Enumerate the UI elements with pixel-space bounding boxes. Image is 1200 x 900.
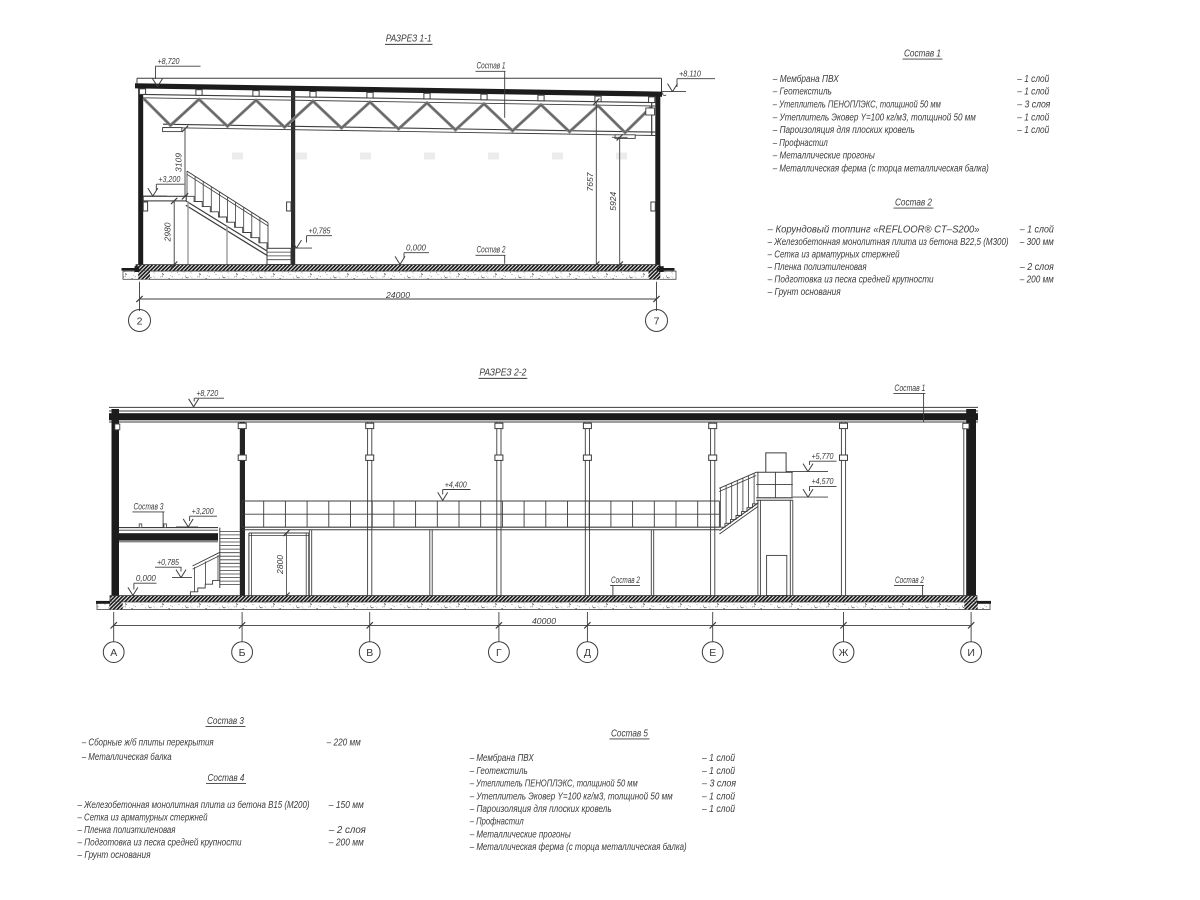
svg-text:0,000: 0,000	[136, 574, 157, 583]
svg-text:40000: 40000	[532, 616, 556, 626]
svg-text:Состав 5: Состав 5	[611, 727, 648, 739]
svg-text:– 1 слой: – 1 слой	[1016, 74, 1049, 85]
svg-text:– Пароизоляция для плоских кро: – Пароизоляция для плоских кровель	[772, 125, 915, 136]
svg-text:– 1 слой: – 1 слой	[701, 753, 735, 764]
svg-text:+8,720: +8,720	[158, 57, 180, 66]
svg-text:Состав 1: Состав 1	[477, 61, 506, 71]
svg-text:Состав 1: Состав 1	[904, 48, 941, 60]
svg-text:– 3 слоя: – 3 слоя	[1016, 100, 1050, 111]
svg-text:2: 2	[137, 315, 143, 327]
svg-text:– 200 мм: – 200 мм	[328, 838, 364, 849]
svg-text:– 200 мм: – 200 мм	[1019, 275, 1054, 286]
svg-text:– Грунт основания: – Грунт основания	[77, 850, 151, 861]
svg-text:5924: 5924	[608, 191, 618, 210]
svg-text:+0,785: +0,785	[309, 227, 331, 236]
svg-text:– 1 слой: – 1 слой	[701, 766, 735, 777]
svg-text:– Утеплитель ПЕНОПЛЭКС, толщин: – Утеплитель ПЕНОПЛЭКС, толщиной 50 мм	[469, 779, 638, 790]
svg-text:– Железобетонная монолитная п: – Железобетонная монолитная плита из бет…	[767, 236, 1009, 248]
svg-text:+4,400: +4,400	[445, 480, 467, 489]
svg-text:А: А	[110, 647, 117, 659]
svg-text:– 2 слоя: – 2 слоя	[1019, 262, 1054, 273]
svg-text:7657: 7657	[585, 172, 595, 191]
svg-text:– 1 слой: – 1 слой	[1016, 112, 1049, 123]
svg-text:– Пленка полиэтиленовая: – Пленка полиэтиленовая	[767, 262, 867, 273]
svg-text:– 1 слой: – 1 слой	[701, 804, 735, 815]
svg-text:– Корундовый топпинг «REFLOOR®: – Корундовый топпинг «REFLOOR® CT–S200»	[767, 225, 980, 236]
svg-text:7: 7	[654, 315, 660, 327]
svg-text:3109: 3109	[174, 153, 184, 172]
svg-text:– Пароизоляция для плоских кро: – Пароизоляция для плоских кровель	[469, 804, 612, 815]
svg-text:+0,785: +0,785	[157, 558, 179, 567]
svg-text:+3,200: +3,200	[192, 507, 214, 516]
svg-text:– Сетка из арматурных стержней: – Сетка из арматурных стержней	[77, 813, 208, 824]
svg-text:Состав 3: Состав 3	[207, 715, 244, 727]
svg-text:– Пленка полиэтиленовая: – Пленка полиэтиленовая	[77, 825, 176, 836]
svg-text:Состав 2: Состав 2	[895, 575, 924, 585]
svg-text:+8,110: +8,110	[679, 70, 701, 79]
svg-text:– Металлические прогоны: – Металлические прогоны	[772, 151, 875, 162]
svg-text:– Утеплитель Эковер Y=100 кг/м: – Утеплитель Эковер Y=100 кг/м3, толщино…	[772, 112, 976, 123]
svg-text:Состав 1: Состав 1	[894, 383, 925, 393]
svg-text:– 1 слой: – 1 слой	[1019, 225, 1054, 236]
svg-text:2800: 2800	[275, 555, 285, 575]
svg-text:– Профнастил: – Профнастил	[772, 137, 828, 149]
svg-text:– Геотекстиль: – Геотекстиль	[469, 766, 528, 777]
svg-text:Б: Б	[239, 647, 246, 659]
svg-text:– Мембрана ПВХ: – Мембрана ПВХ	[772, 73, 839, 85]
svg-text:2980: 2980	[163, 222, 173, 242]
svg-text:Д: Д	[584, 647, 591, 659]
svg-text:– Металлическая ферма (с торца: – Металлическая ферма (с торца металличе…	[772, 163, 989, 175]
svg-text:– Металлические прогоны: – Металлические прогоны	[469, 829, 571, 840]
svg-text:+8,720: +8,720	[196, 389, 218, 398]
svg-text:– Утеплитель Эковер Y=100 кг/м: – Утеплитель Эковер Y=100 кг/м3, толщино…	[469, 791, 673, 802]
svg-text:– Железобетонная монолитная п: – Железобетонная монолитная плита из бет…	[77, 799, 310, 811]
svg-text:0,000: 0,000	[406, 244, 427, 253]
svg-text:Состав 2: Состав 2	[895, 197, 932, 209]
svg-text:– 220 мм: – 220 мм	[326, 737, 361, 748]
svg-text:– 300 мм: – 300 мм	[1019, 237, 1054, 248]
svg-text:– 1 слой: – 1 слой	[1016, 87, 1049, 98]
svg-text:+5,770: +5,770	[812, 452, 834, 461]
svg-text:Состав 3: Состав 3	[134, 502, 164, 512]
svg-text:– 3 слоя: – 3 слоя	[701, 779, 736, 790]
svg-text:– Грунт основания: – Грунт основания	[767, 287, 841, 298]
svg-text:Состав 2: Состав 2	[611, 575, 640, 585]
svg-text:В: В	[366, 647, 373, 659]
svg-text:РАЗРЕЗ 2-2: РАЗРЕЗ 2-2	[479, 367, 526, 379]
svg-text:– Мембрана ПВХ: – Мембрана ПВХ	[469, 752, 534, 764]
svg-text:24000: 24000	[385, 290, 410, 300]
svg-text:Г: Г	[496, 647, 502, 659]
svg-text:Состав 2: Состав 2	[477, 245, 506, 255]
svg-text:+3,200: +3,200	[158, 175, 180, 184]
svg-text:И: И	[967, 647, 975, 659]
svg-text:– Подготовка из песка средней: – Подготовка из песка средней крупности	[767, 275, 934, 286]
svg-text:– Утеплитель ПЕНОПЛЭКС, толщин: – Утеплитель ПЕНОПЛЭКС, толщиной 50 мм	[772, 100, 941, 111]
svg-text:– Подготовка из песка средней: – Подготовка из песка средней крупности	[77, 838, 242, 849]
svg-text:– 1 слой: – 1 слой	[1016, 125, 1049, 136]
svg-text:– Профнастил: – Профнастил	[469, 816, 524, 828]
svg-text:РАЗРЕЗ 1-1: РАЗРЕЗ 1-1	[386, 33, 432, 45]
svg-text:– 1 слой: – 1 слой	[701, 791, 735, 802]
svg-text:– Металлическая ферма (с торца: – Металлическая ферма (с торца металличе…	[469, 841, 687, 853]
svg-text:Состав 4: Состав 4	[208, 772, 245, 784]
svg-text:– Сетка из арматурных стержней: – Сетка из арматурных стержней	[767, 250, 900, 261]
svg-text:– 150 мм: – 150 мм	[328, 800, 364, 811]
svg-text:Ж: Ж	[839, 647, 849, 659]
svg-text:– Сборные ж/б плиты перекрытия: – Сборные ж/б плиты перекрытия	[81, 736, 214, 748]
svg-text:+4,570: +4,570	[812, 477, 834, 486]
svg-text:– 2 слоя: – 2 слоя	[328, 825, 367, 836]
svg-text:– Геотекстиль: – Геотекстиль	[772, 87, 832, 98]
svg-text:Е: Е	[709, 647, 716, 659]
svg-text:– Металлическая балка: – Металлическая балка	[81, 751, 172, 763]
